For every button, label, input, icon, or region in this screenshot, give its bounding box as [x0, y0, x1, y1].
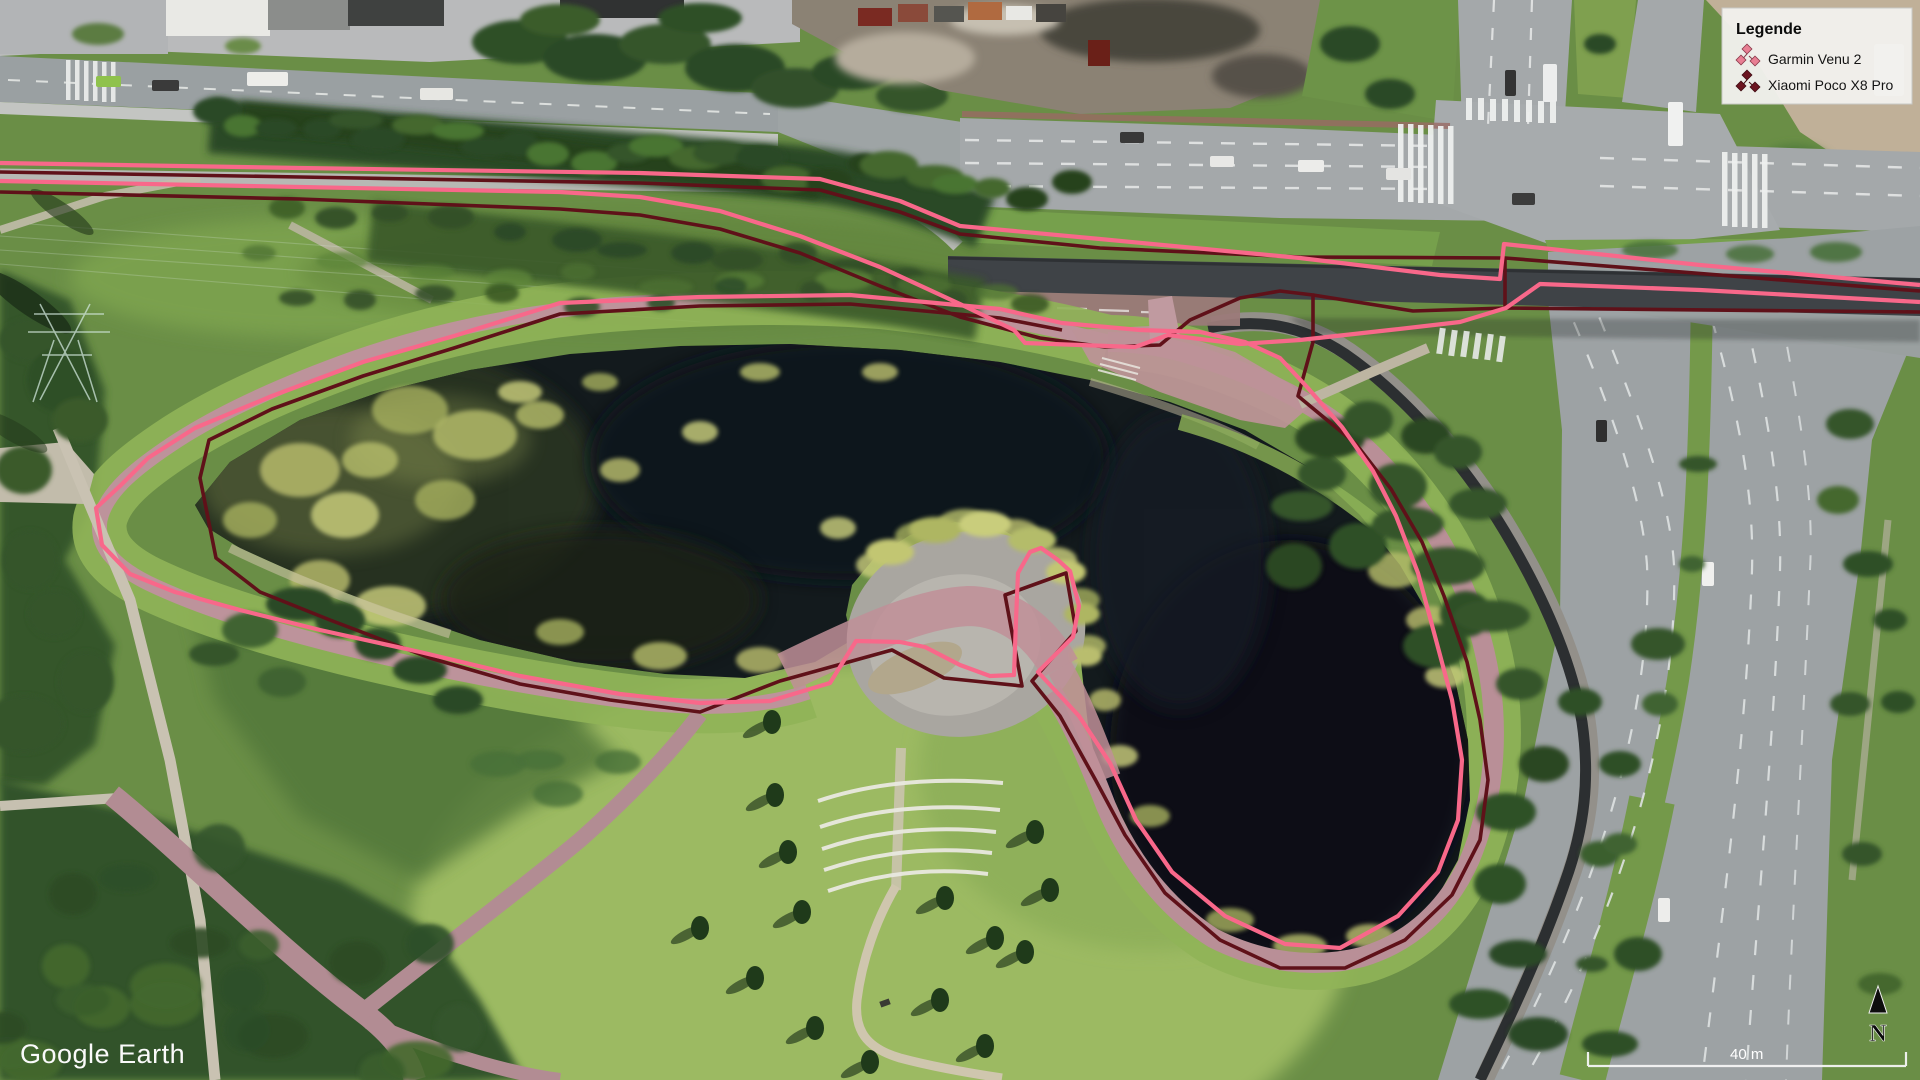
- svg-text:Google Earth: Google Earth: [20, 1039, 185, 1069]
- svg-text:Garmin Venu 2: Garmin Venu 2: [1768, 51, 1862, 67]
- svg-text:N: N: [1869, 1021, 1887, 1047]
- svg-text:Xiaomi Poco X8 Pro: Xiaomi Poco X8 Pro: [1768, 77, 1893, 93]
- svg-text:40 m: 40 m: [1730, 1046, 1763, 1063]
- svg-text:Legende: Legende: [1736, 21, 1802, 38]
